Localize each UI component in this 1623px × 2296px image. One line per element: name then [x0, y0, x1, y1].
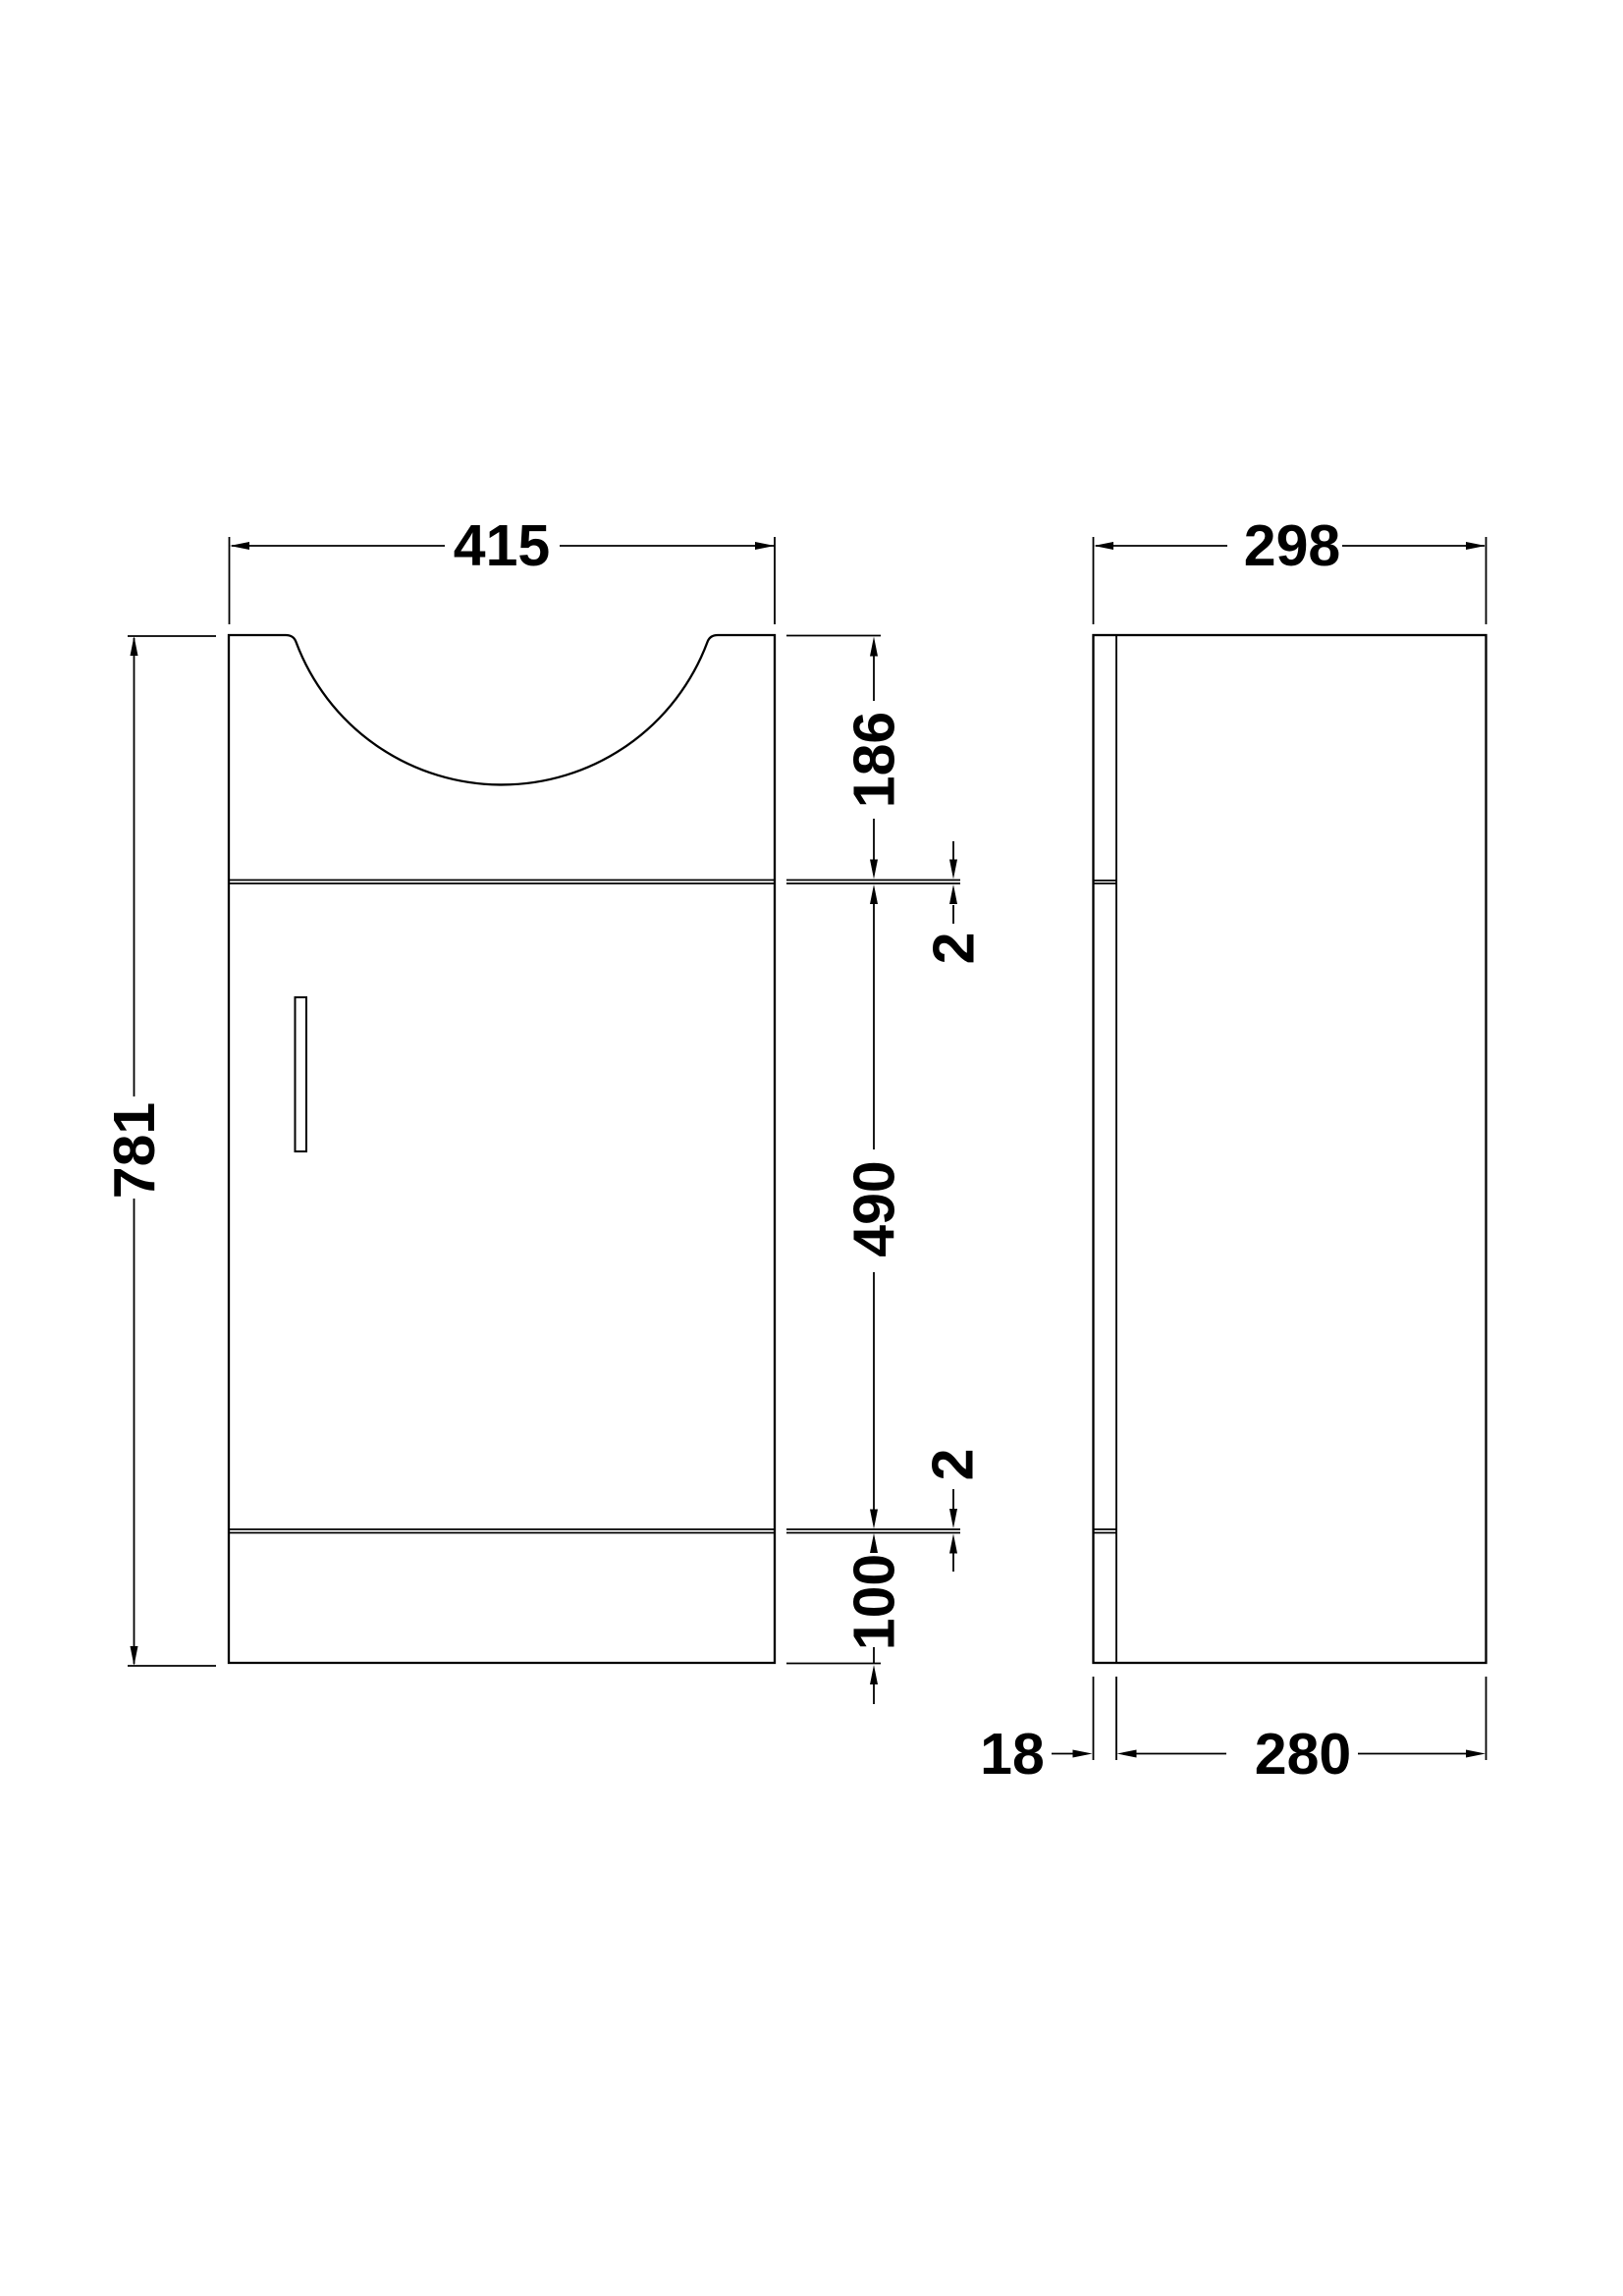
- svg-text:18: 18: [980, 1722, 1045, 1787]
- svg-text:280: 280: [1255, 1722, 1351, 1787]
- svg-text:298: 298: [1244, 513, 1340, 578]
- svg-text:2: 2: [922, 933, 987, 965]
- svg-text:781: 781: [102, 1102, 167, 1199]
- svg-text:490: 490: [842, 1160, 907, 1256]
- svg-text:415: 415: [454, 513, 550, 578]
- svg-text:2: 2: [921, 1449, 986, 1481]
- svg-text:186: 186: [842, 712, 907, 808]
- svg-text:100: 100: [842, 1554, 907, 1650]
